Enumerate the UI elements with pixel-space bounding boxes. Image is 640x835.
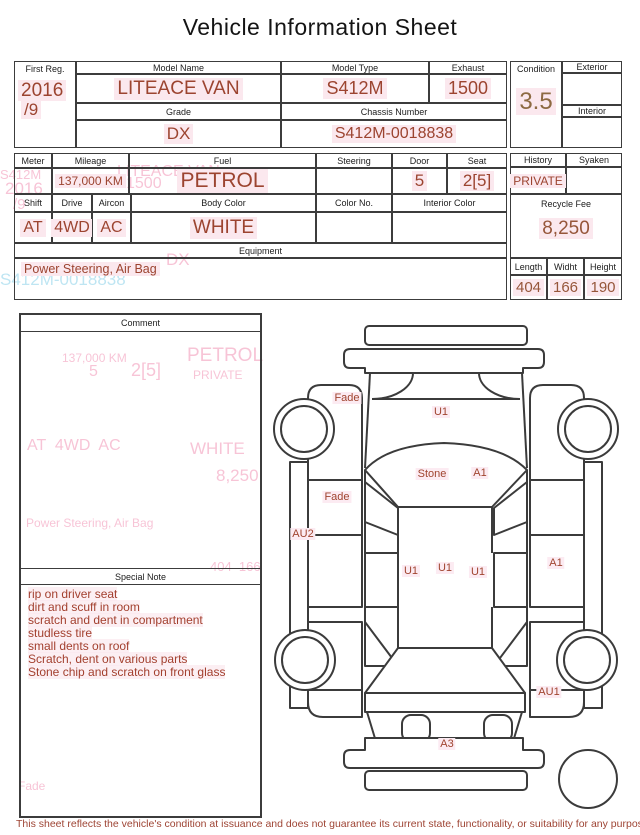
- interior-color-label: Interior Color: [392, 194, 507, 212]
- syaken-value: [566, 167, 622, 194]
- special-note-list: rip on driver seat dirt and scuff in roo…: [28, 588, 256, 679]
- length-label: Length: [510, 258, 547, 275]
- condition-label: Condition: [511, 62, 561, 74]
- recycle-fee-value: 8,250: [511, 209, 621, 240]
- interior-color-value: [392, 212, 507, 243]
- width-label: Widht: [547, 258, 584, 275]
- chassis-number-label: Chassis Number: [281, 103, 507, 120]
- fuel-value: PETROL: [129, 168, 316, 194]
- seat-value: 2[5]: [447, 168, 507, 194]
- model-name-label: Model Name: [76, 61, 281, 74]
- recycle-fee-text: 8,250: [539, 218, 593, 239]
- damage-mark-au1-right-rear: AU1: [536, 686, 561, 698]
- length-text: 404: [513, 279, 544, 296]
- body-color-label: Body Color: [131, 194, 316, 212]
- exterior-value: [562, 73, 622, 105]
- meter-value: [14, 168, 52, 194]
- first-reg-label: First Reg.: [15, 62, 75, 74]
- equipment-label: Equipment: [14, 243, 507, 258]
- exhaust-value: 1500: [429, 74, 507, 103]
- model-type-label: Model Type: [281, 61, 429, 74]
- mileage-label: Mileage: [52, 153, 129, 168]
- chassis-number-value: S412M-0018838: [281, 120, 507, 148]
- history-value: PRIVATE: [510, 167, 566, 194]
- body-color-text: WHITE: [190, 217, 257, 239]
- door-text: 5: [412, 171, 427, 191]
- damage-mark-a1-windshield: A1: [471, 467, 488, 479]
- recycle-fee-label: Recycle Fee: [511, 195, 621, 209]
- field-first-reg: First Reg. 2016 /9: [14, 61, 76, 148]
- shift-label: Shift: [14, 194, 52, 212]
- chassis-number-text: S412M-0018838: [332, 125, 456, 143]
- interior-label: Interior: [562, 105, 622, 117]
- grade-value: DX: [76, 120, 281, 148]
- first-reg-year: 2016: [18, 80, 66, 101]
- color-no-value: [316, 212, 392, 243]
- first-reg-value: 2016: [15, 74, 75, 101]
- equipment-text: Power Steering, Air Bag: [21, 262, 160, 276]
- syaken-label: Syaken: [566, 153, 622, 167]
- damage-mark-stone-windshield: Stone: [416, 468, 449, 480]
- steering-label: Steering: [316, 153, 392, 168]
- seat-label: Seat: [447, 153, 507, 168]
- first-reg-month-text: /9: [21, 100, 41, 119]
- disclaimer-text: This sheet reflects the vehicle's condit…: [16, 818, 628, 830]
- condition-value: 3.5: [511, 74, 561, 116]
- door-label: Door: [392, 153, 447, 168]
- length-value: 404: [510, 275, 547, 300]
- history-label: History: [510, 153, 566, 167]
- damage-mark-a3-rear: A3: [438, 738, 455, 750]
- drive-label: Drive: [52, 194, 92, 212]
- page-title: Vehicle Information Sheet: [0, 14, 640, 41]
- height-value: 190: [584, 275, 622, 300]
- shift-value: AT: [14, 212, 52, 243]
- exhaust-label: Exhaust: [429, 61, 507, 74]
- damage-mark-au2-left-sill: AU2: [290, 528, 315, 540]
- grade-text: DX: [164, 124, 194, 144]
- first-reg-month: /9: [15, 101, 75, 119]
- field-recycle-fee: Recycle Fee 8,250: [510, 194, 622, 258]
- comment-box: Comment Special Note rip on driver seat …: [19, 313, 262, 818]
- damage-mark-fade-front-left: Fade: [332, 392, 361, 404]
- damage-mark-u1-roof-2: U1: [436, 562, 454, 574]
- color-no-label: Color No.: [316, 194, 392, 212]
- model-type-value: S412M: [281, 74, 429, 103]
- seat-text: 2[5]: [460, 171, 494, 191]
- damage-mark-u1-roof-1: U1: [402, 565, 420, 577]
- special-note-line: Stone chip and scratch on front glass: [28, 666, 256, 679]
- drive-text: 4WD: [51, 219, 93, 237]
- mileage-text: 137,000 KM: [55, 174, 126, 188]
- interior-value: [562, 117, 622, 148]
- width-text: 166: [550, 279, 581, 296]
- meter-label: Meter: [14, 153, 52, 168]
- height-label: Height: [584, 258, 622, 275]
- damage-mark-a1-right-door: A1: [547, 557, 564, 569]
- equipment-value: Power Steering, Air Bag: [14, 258, 507, 300]
- exhaust-text: 1500: [445, 78, 491, 99]
- special-note-label: Special Note: [21, 568, 260, 585]
- comment-label: Comment: [21, 315, 260, 332]
- fuel-text: PETROL: [177, 169, 267, 193]
- height-text: 190: [587, 279, 618, 296]
- door-value: 5: [392, 168, 447, 194]
- steering-value: [316, 168, 392, 194]
- body-color-value: WHITE: [131, 212, 316, 243]
- width-value: 166: [547, 275, 584, 300]
- history-text: PRIVATE: [510, 174, 566, 188]
- mileage-value: 137,000 KM: [52, 168, 129, 194]
- field-condition: Condition 3.5: [510, 61, 562, 148]
- model-name-value: LITEACE VAN: [76, 74, 281, 103]
- aircon-text: AC: [97, 219, 125, 237]
- drive-value: 4WD: [52, 212, 92, 243]
- aircon-value: AC: [92, 212, 131, 243]
- model-name-text: LITEACE VAN: [114, 78, 242, 100]
- model-type-text: S412M: [323, 78, 386, 99]
- damage-mark-u1-hood: U1: [432, 406, 450, 418]
- condition-text: 3.5: [516, 88, 555, 115]
- grade-label: Grade: [76, 103, 281, 120]
- aircon-label: Aircon: [92, 194, 131, 212]
- exterior-label: Exterior: [562, 61, 622, 73]
- vehicle-information-sheet: S412M 2016 /9 LITEACE VAN 1500 DX S412M-…: [0, 0, 640, 835]
- damage-mark-u1-roof-3: U1: [469, 566, 487, 578]
- fuel-label: Fuel: [129, 153, 316, 168]
- damage-mark-fade-left-door: Fade: [322, 491, 351, 503]
- car-damage-diagram: Fade U1 Stone A1 Fade AU2 U1 U1 U1 A1 AU…: [272, 308, 634, 825]
- shift-text: AT: [20, 219, 45, 237]
